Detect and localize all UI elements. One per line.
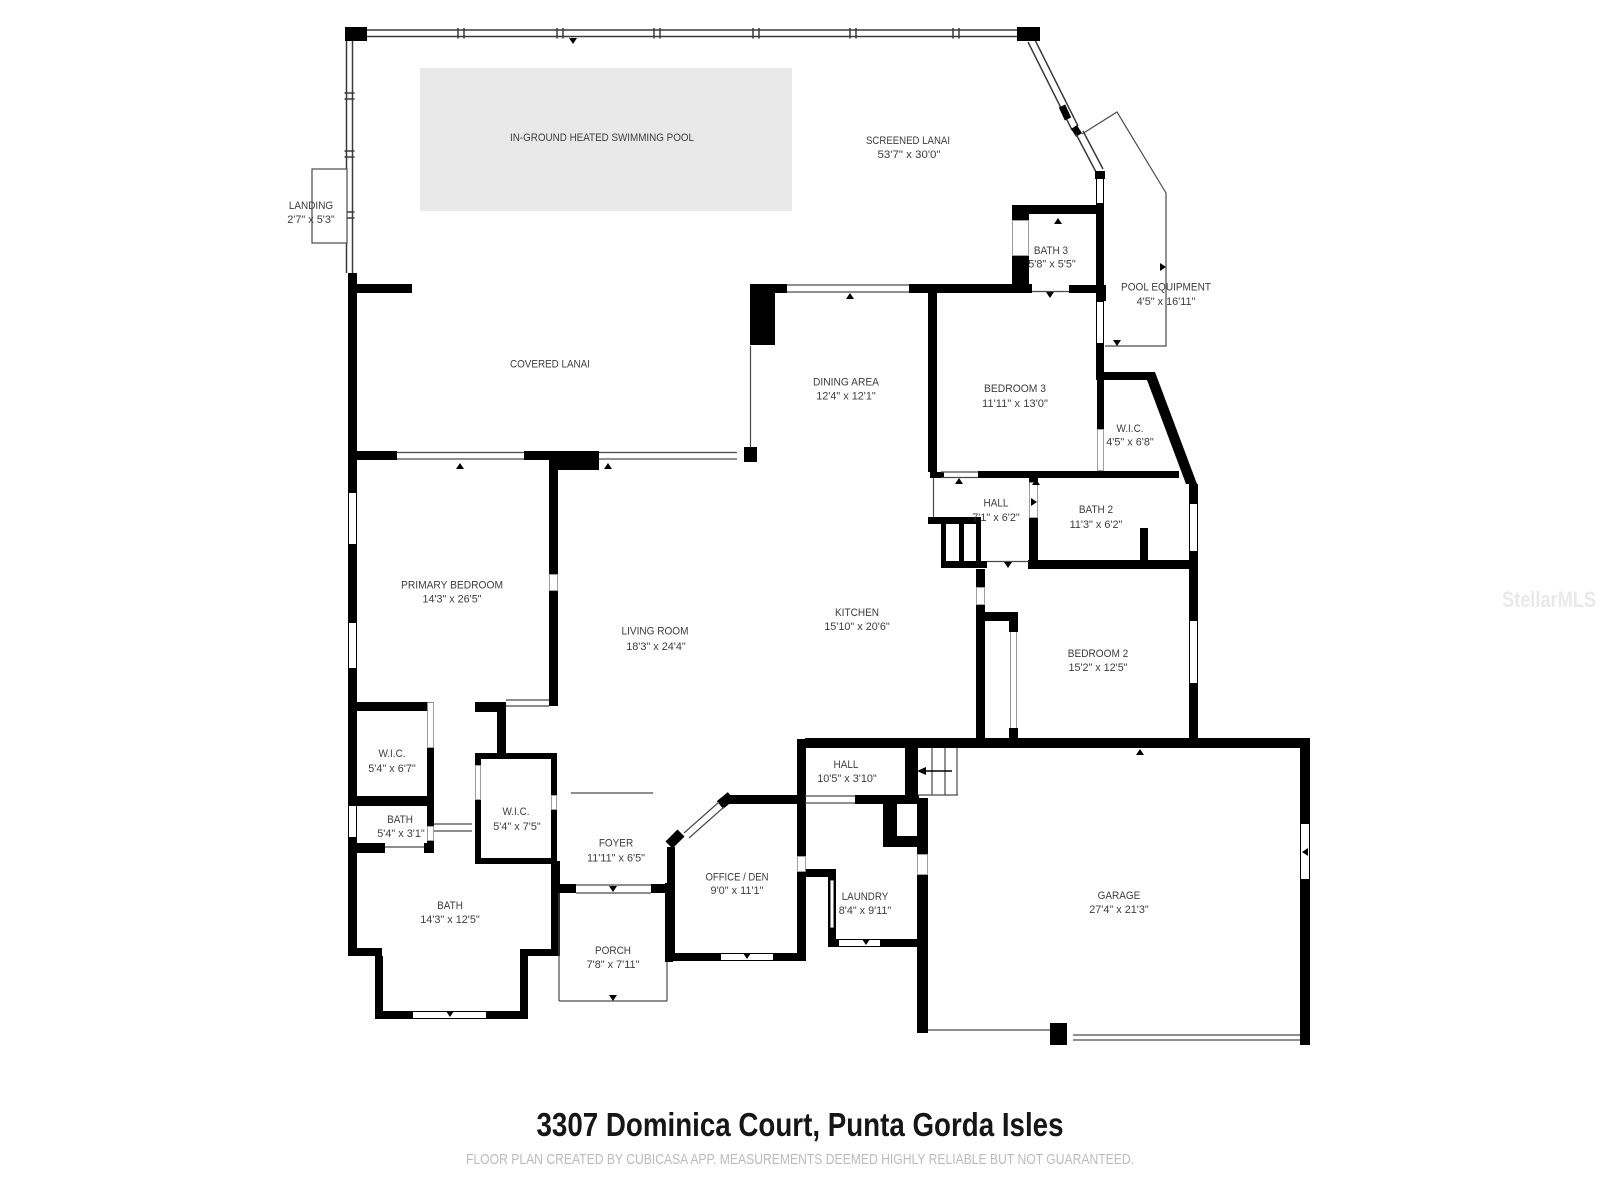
svg-text:StellarMLS: StellarMLS xyxy=(1502,587,1596,612)
svg-text:11'11" x 13'0": 11'11" x 13'0" xyxy=(982,398,1048,410)
svg-text:3307 Dominica Court, Punta Gor: 3307 Dominica Court, Punta Gorda Isles xyxy=(537,1106,1064,1143)
svg-text:53'7" x 30'0": 53'7" x 30'0" xyxy=(878,149,941,161)
svg-text:BEDROOM 3: BEDROOM 3 xyxy=(984,383,1046,395)
svg-text:BATH 2: BATH 2 xyxy=(1079,504,1113,516)
svg-text:KITCHEN: KITCHEN xyxy=(835,607,879,619)
svg-text:COVERED LANAI: COVERED LANAI xyxy=(510,359,590,371)
svg-text:27'4" x 21'3": 27'4" x 21'3" xyxy=(1089,904,1149,916)
svg-text:LAUNDRY: LAUNDRY xyxy=(842,891,889,903)
svg-text:W.I.C.: W.I.C. xyxy=(378,748,405,760)
svg-text:14'3" x 26'5": 14'3" x 26'5" xyxy=(423,594,482,606)
svg-text:LIVING ROOM: LIVING ROOM xyxy=(622,626,689,638)
svg-text:10'5" x 3'10": 10'5" x 3'10" xyxy=(817,773,877,785)
svg-text:BEDROOM 2: BEDROOM 2 xyxy=(1068,648,1129,660)
svg-text:18'3" x 24'4": 18'3" x 24'4" xyxy=(626,641,686,653)
svg-text:BATH: BATH xyxy=(387,814,413,826)
svg-text:SCREENED LANAI: SCREENED LANAI xyxy=(866,135,950,147)
svg-text:LANDING: LANDING xyxy=(289,200,333,212)
svg-text:FLOOR PLAN CREATED BY CUBICASA: FLOOR PLAN CREATED BY CUBICASA APP. MEAS… xyxy=(466,1152,1134,1168)
svg-text:DINING AREA: DINING AREA xyxy=(813,377,879,389)
svg-text:7'1" x 6'2": 7'1" x 6'2" xyxy=(972,512,1020,524)
svg-text:BATH 3: BATH 3 xyxy=(1034,245,1068,257)
svg-text:GARAGE: GARAGE xyxy=(1098,890,1141,902)
svg-text:4'5" x 16'11": 4'5" x 16'11" xyxy=(1137,296,1196,308)
svg-text:11'11" x 6'5": 11'11" x 6'5" xyxy=(587,853,645,865)
svg-text:12'4" x 12'1": 12'4" x 12'1" xyxy=(816,391,876,403)
svg-text:HALL: HALL xyxy=(984,498,1009,510)
svg-text:5'4" x 7'5": 5'4" x 7'5" xyxy=(493,821,541,833)
svg-text:POOL EQUIPMENT: POOL EQUIPMENT xyxy=(1121,282,1211,294)
svg-text:15'2" x 12'5": 15'2" x 12'5" xyxy=(1069,662,1128,674)
svg-text:15'10" x 20'6": 15'10" x 20'6" xyxy=(824,621,890,633)
svg-text:PORCH: PORCH xyxy=(595,945,631,957)
svg-text:FOYER: FOYER xyxy=(599,838,633,850)
svg-text:14'3" x 12'5": 14'3" x 12'5" xyxy=(420,914,480,926)
svg-text:OFFICE / DEN: OFFICE / DEN xyxy=(706,872,769,884)
svg-text:W.I.C.: W.I.C. xyxy=(502,806,529,818)
svg-text:4'5" x 6'8": 4'5" x 6'8" xyxy=(1106,437,1154,449)
svg-text:IN-GROUND HEATED SWIMMING POOL: IN-GROUND HEATED SWIMMING POOL xyxy=(510,132,694,144)
svg-text:W.I.C.: W.I.C. xyxy=(1116,423,1143,435)
svg-text:11'3" x 6'2": 11'3" x 6'2" xyxy=(1070,519,1123,531)
svg-text:7'8" x 7'11": 7'8" x 7'11" xyxy=(587,959,640,971)
svg-text:2'7" x 5'3": 2'7" x 5'3" xyxy=(287,214,335,226)
svg-text:5'8" x 5'5": 5'8" x 5'5" xyxy=(1028,259,1076,271)
svg-text:8'4" x 9'11": 8'4" x 9'11" xyxy=(839,905,892,917)
svg-text:PRIMARY BEDROOM: PRIMARY BEDROOM xyxy=(401,580,503,592)
svg-text:9'0" x 11'1": 9'0" x 11'1" xyxy=(711,885,764,897)
svg-text:5'4" x 3'1": 5'4" x 3'1" xyxy=(377,828,425,840)
svg-text:BATH: BATH xyxy=(437,900,463,912)
svg-text:5'4" x 6'7": 5'4" x 6'7" xyxy=(368,763,416,775)
svg-text:HALL: HALL xyxy=(834,759,859,771)
